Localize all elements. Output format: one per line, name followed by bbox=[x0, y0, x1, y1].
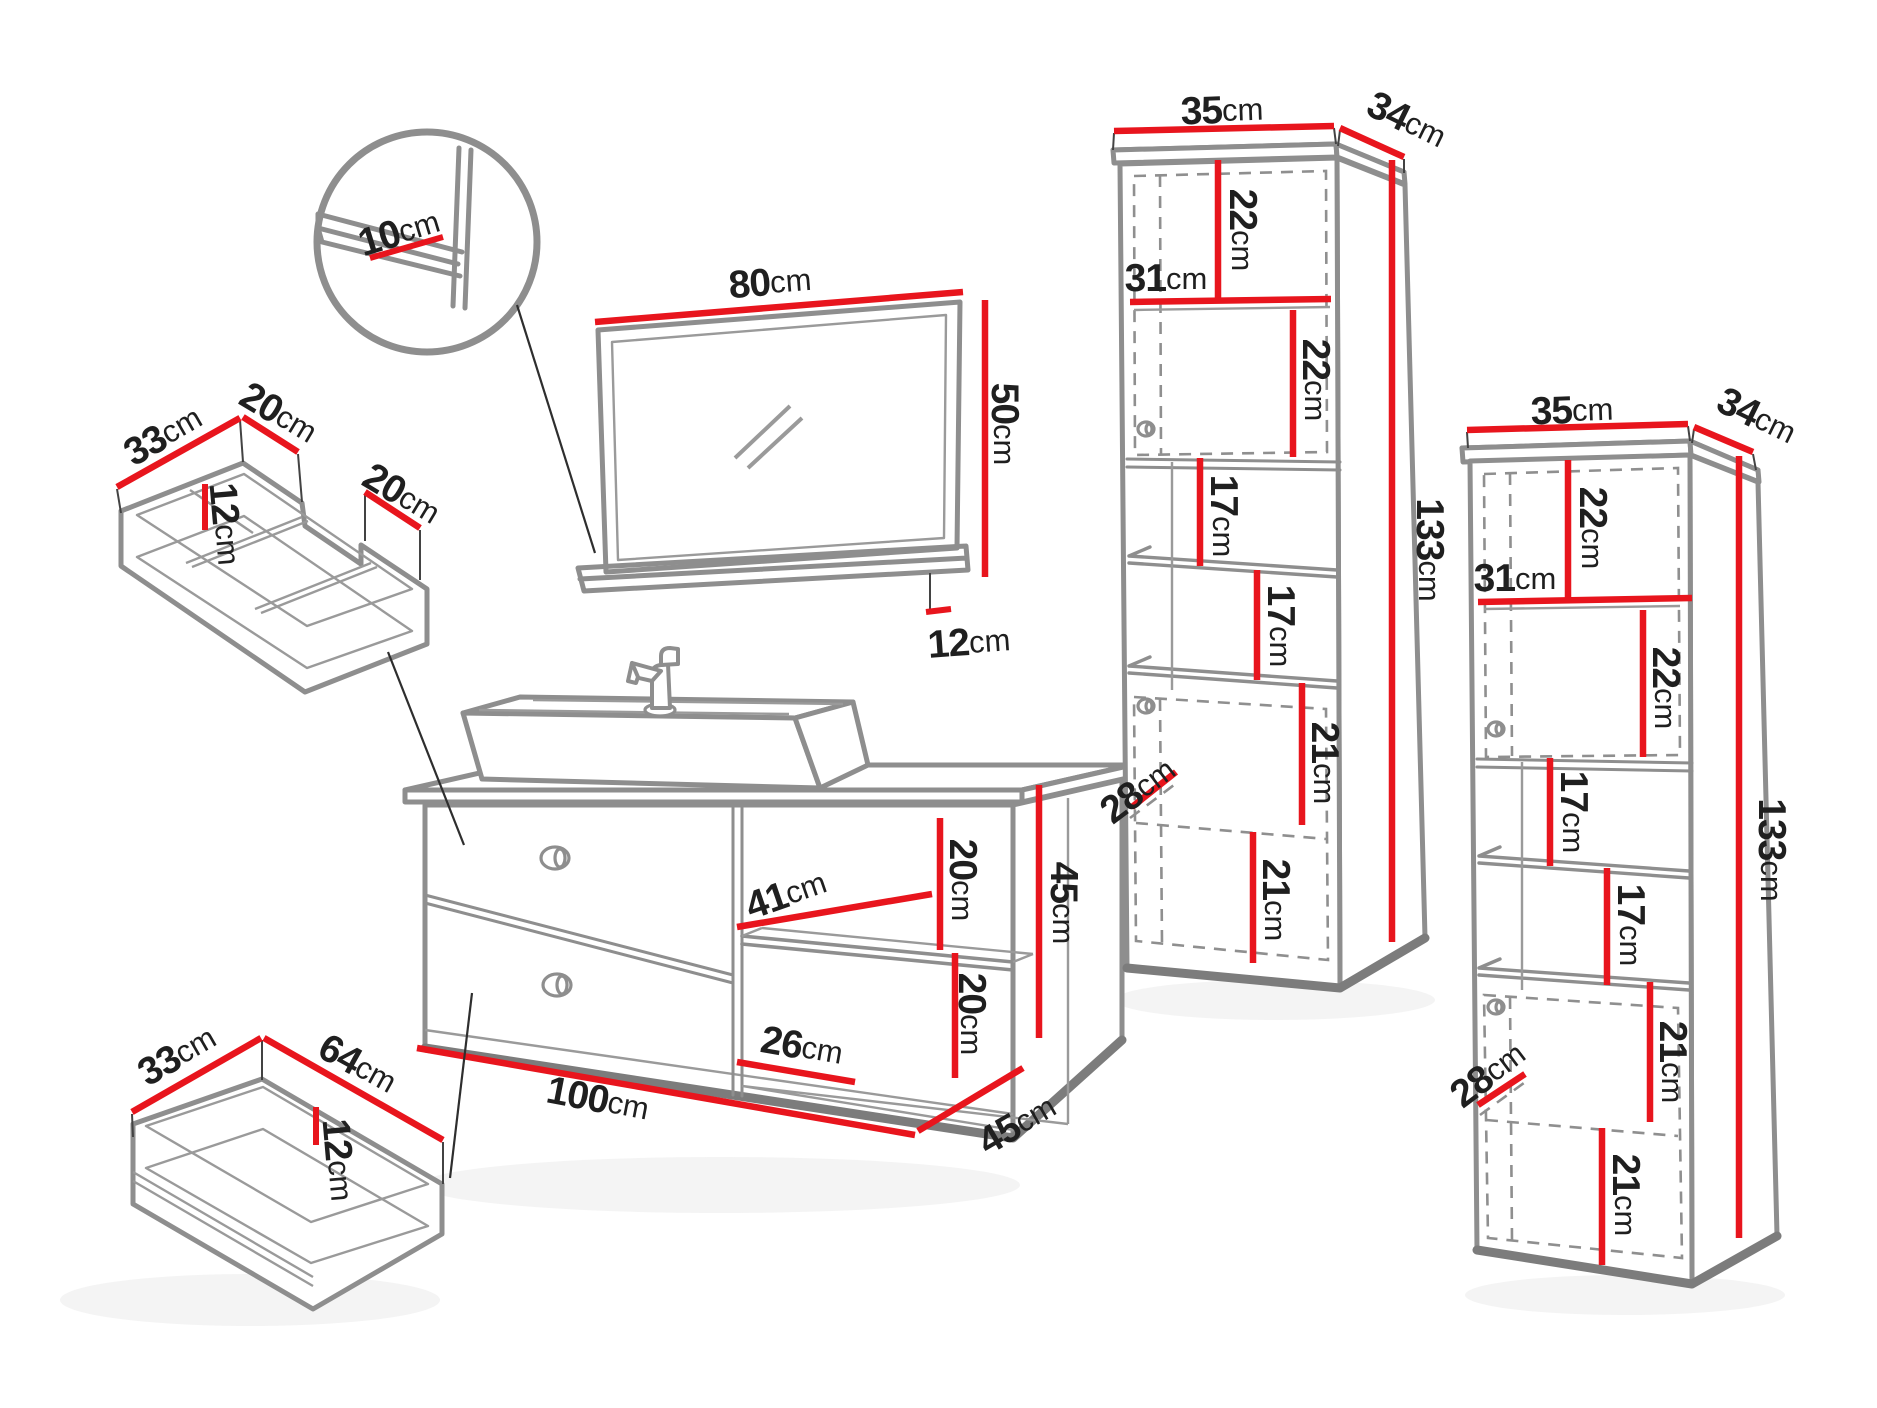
shadow bbox=[60, 1274, 440, 1326]
cab1-lower-1-label: 21cm bbox=[1304, 722, 1347, 805]
mirror-height-label: 50cm bbox=[984, 383, 1027, 466]
cabinet-door-knob-inner bbox=[1496, 1002, 1502, 1012]
cab2-shelf-gap-2-label: 17cm bbox=[1610, 884, 1653, 967]
vanity-drawer-knob-inner bbox=[555, 849, 565, 867]
vanity-counter-front bbox=[405, 790, 1022, 802]
drawer-organizer: 33cm 20cm 12cm 20cm bbox=[116, 373, 448, 692]
furniture-dimension-diagram: 80cm 50cm 12cm 10cm 33cm 20cm 12cm 20cm bbox=[0, 0, 1877, 1408]
cab1-interior-width-label: 31cm bbox=[1125, 257, 1208, 300]
cabinet-door-knob-inner bbox=[1496, 724, 1502, 734]
cab1-shelf-gap-1-label: 17cm bbox=[1203, 475, 1246, 558]
mirror-shelf-offset-label: 12cm bbox=[926, 618, 1012, 667]
vanity-niche-bottom-label: 20cm bbox=[951, 973, 994, 1056]
faucet-neck bbox=[661, 648, 678, 665]
diagram-canvas: 80cm 50cm 12cm 10cm 33cm 20cm 12cm 20cm bbox=[0, 0, 1877, 1408]
cab1-second-compartment-label: 22cm bbox=[1295, 339, 1338, 422]
cab1-width-label: 35cm bbox=[1180, 87, 1264, 133]
cab2-height-label: 133cm bbox=[1751, 798, 1794, 901]
vanity-drawer-knob-inner bbox=[557, 976, 567, 994]
cab2-top-compartment-label: 22cm bbox=[1572, 487, 1615, 570]
mirror-width-label: 80cm bbox=[727, 257, 813, 306]
vanity-niche-top-label: 20cm bbox=[942, 839, 985, 922]
mirror: 80cm 50cm 12cm bbox=[578, 257, 1027, 666]
tall-cabinet-left: 35cm 34cm 22cm 31cm 22cm 17cm 17cm 21cm … bbox=[1092, 83, 1454, 988]
shadow bbox=[420, 1157, 1020, 1213]
cab2-width-label: 35cm bbox=[1530, 387, 1614, 433]
vanity-unit: 20cm 41cm 20cm 26cm 100cm 45cm 45cm bbox=[405, 648, 1132, 1163]
cabinet-door-knob-inner bbox=[1146, 424, 1152, 434]
shadow bbox=[1465, 1275, 1785, 1315]
cabinet-side-panel bbox=[1337, 158, 1425, 987]
cab1-shelf-gap-2-label: 17cm bbox=[1260, 585, 1303, 668]
drawer: 33cm 64cm 12cm bbox=[130, 1016, 443, 1309]
cab1-top-compartment-label: 22cm bbox=[1222, 189, 1265, 272]
cab2-second-compartment-label: 22cm bbox=[1645, 647, 1688, 730]
cab2-lower-2-label: 21cm bbox=[1605, 1154, 1648, 1237]
dim-line-mirror-shelf-offset bbox=[926, 609, 951, 612]
cab2-shelf-gap-1-label: 17cm bbox=[1553, 771, 1596, 854]
cab2-lower-1-label: 21cm bbox=[1652, 1021, 1695, 1104]
cab2-interior-width-label: 31cm bbox=[1474, 557, 1557, 600]
sink-front bbox=[463, 713, 820, 788]
cab1-height-label: 133cm bbox=[1409, 498, 1452, 601]
cab1-lower-2-label: 21cm bbox=[1255, 859, 1298, 942]
cabinet-door-knob-inner bbox=[1146, 701, 1152, 711]
vanity-height-label: 45cm bbox=[1043, 862, 1086, 945]
leader-line-detail-to-mirror bbox=[517, 305, 595, 553]
organizer-right-width-label: 20cm bbox=[355, 454, 448, 533]
shelf-detail-circle: 10cm bbox=[317, 132, 537, 352]
tall-cabinet-right: 35cm 34cm 22cm 31cm 22cm 17cm 17cm 21cm … bbox=[1442, 379, 1804, 1284]
